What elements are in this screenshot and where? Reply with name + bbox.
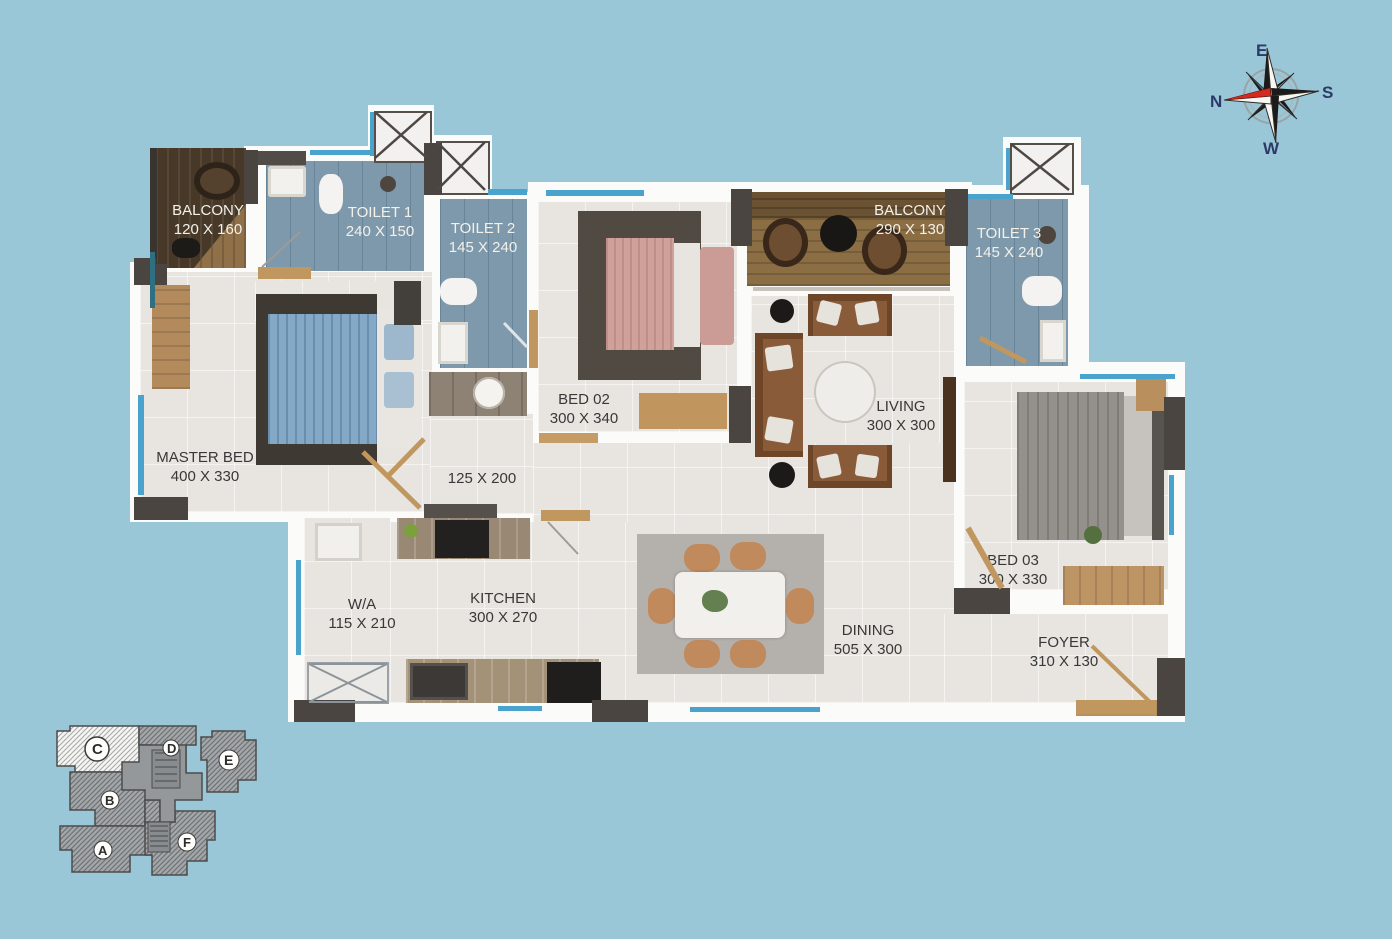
svg-text:A: A xyxy=(98,843,108,858)
svg-text:F: F xyxy=(183,835,191,850)
svg-text:C: C xyxy=(92,741,103,758)
svg-text:E: E xyxy=(1256,41,1267,60)
svg-text:E: E xyxy=(224,752,233,768)
svg-text:S: S xyxy=(1322,83,1333,102)
svg-text:W: W xyxy=(1263,139,1280,158)
svg-text:D: D xyxy=(167,741,176,756)
svg-text:B: B xyxy=(105,793,114,808)
svg-text:N: N xyxy=(1210,92,1222,111)
